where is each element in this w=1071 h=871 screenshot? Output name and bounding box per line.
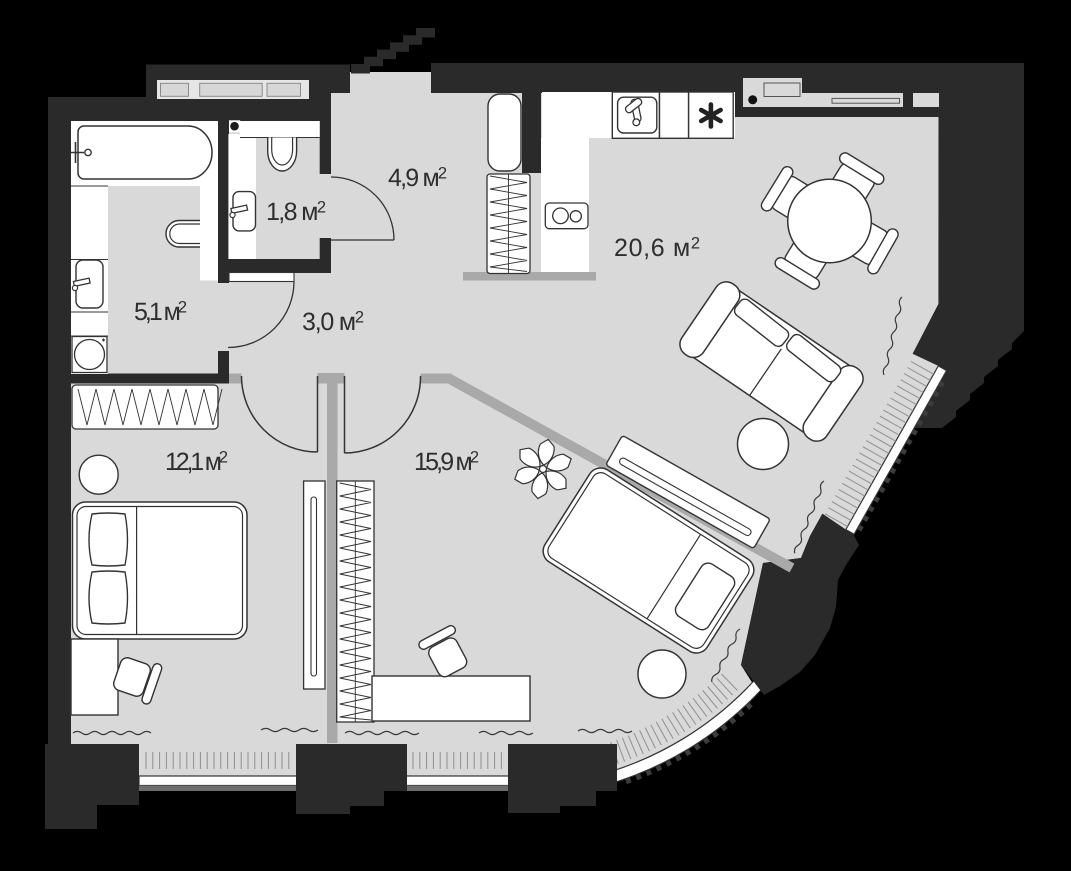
svg-text:5,1 м2: 5,1 м2 bbox=[134, 298, 187, 326]
svg-text:3,0 м2: 3,0 м2 bbox=[302, 308, 364, 336]
svg-text:12,1 м2: 12,1 м2 bbox=[165, 448, 228, 476]
svg-text:20,6 м2: 20,6 м2 bbox=[614, 234, 700, 262]
svg-text:4,9 м2: 4,9 м2 bbox=[388, 164, 447, 192]
svg-text:15,9 м2: 15,9 м2 bbox=[414, 448, 479, 476]
svg-text:1,8 м2: 1,8 м2 bbox=[266, 198, 326, 226]
